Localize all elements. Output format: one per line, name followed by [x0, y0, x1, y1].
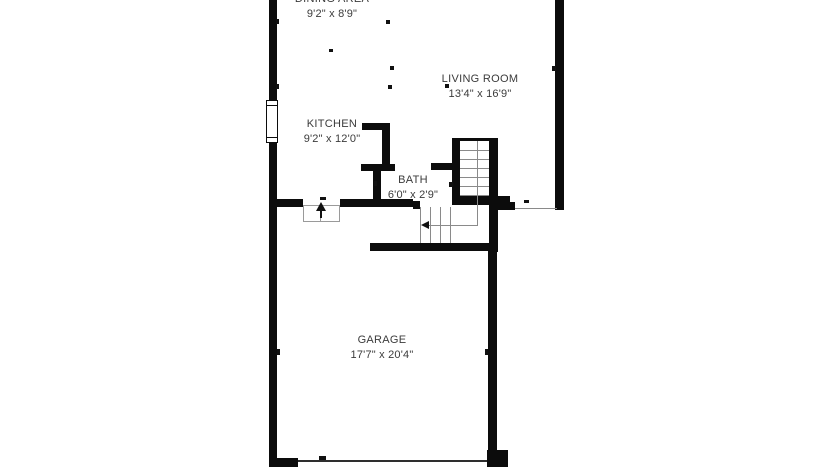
wall-tick [388, 85, 392, 89]
room-dimensions: 6'0" x 2'9" [333, 189, 493, 202]
corner-garage-bottom-right [487, 450, 508, 467]
entry-door-tick [320, 197, 326, 200]
floor-plan: DINING AREA 9'2" x 8'9" LIVING ROOM 13'4… [0, 0, 835, 467]
wall-tick [485, 349, 488, 355]
stair-tread [460, 168, 489, 169]
garage-door-line [298, 460, 487, 462]
garage-door-tick [319, 456, 326, 460]
room-name: BATH [333, 174, 493, 187]
stair-path-line [429, 225, 478, 226]
room-name: LIVING ROOM [400, 73, 560, 86]
stair-tread [460, 159, 489, 160]
entry-arrow-stem [320, 210, 322, 218]
opening-threshold-line [515, 208, 557, 209]
room-dimensions: 9'2" x 8'9" [252, 8, 412, 21]
wall-tick [277, 349, 280, 355]
stairs-top-edge [460, 138, 489, 141]
room-dimensions: 9'2" x 12'0" [252, 133, 412, 146]
room-dimensions: 17'7" x 20'4" [302, 349, 462, 362]
wall-entry-left [269, 199, 303, 207]
room-label-dining-area: DINING AREA 9'2" x 8'9" [252, 0, 412, 21]
window-pane-line [267, 105, 277, 106]
room-label-living-room: LIVING ROOM 13'4" x 16'9" [400, 73, 560, 101]
room-label-kitchen: KITCHEN 9'2" x 12'0" [252, 118, 412, 146]
room-name: KITCHEN [252, 118, 412, 131]
corner-garage-bottom-left [269, 458, 298, 467]
wall-bath-top-left [361, 164, 395, 171]
wall-entry-right-stub [495, 202, 515, 210]
wall-exterior-right-living [555, 0, 564, 210]
room-label-bath: BATH 6'0" x 2'9" [333, 174, 493, 202]
room-name: GARAGE [302, 334, 462, 347]
wall-tick [524, 200, 529, 203]
wall-garage-top [370, 243, 497, 251]
room-name: DINING AREA [252, 0, 412, 6]
room-dimensions: 13'4" x 16'9" [400, 88, 560, 101]
wall-garage-right [488, 243, 497, 467]
stair-direction-arrow-icon [421, 221, 429, 229]
wall-tick [329, 49, 333, 52]
stair-newel-stub [413, 201, 420, 209]
wall-tick [552, 66, 556, 71]
wall-exterior-left-lower [269, 143, 277, 467]
stair-tread [460, 150, 489, 151]
wall-tick [390, 66, 394, 70]
room-label-garage: GARAGE 17'7" x 20'4" [302, 334, 462, 362]
wall-tick [276, 84, 279, 89]
